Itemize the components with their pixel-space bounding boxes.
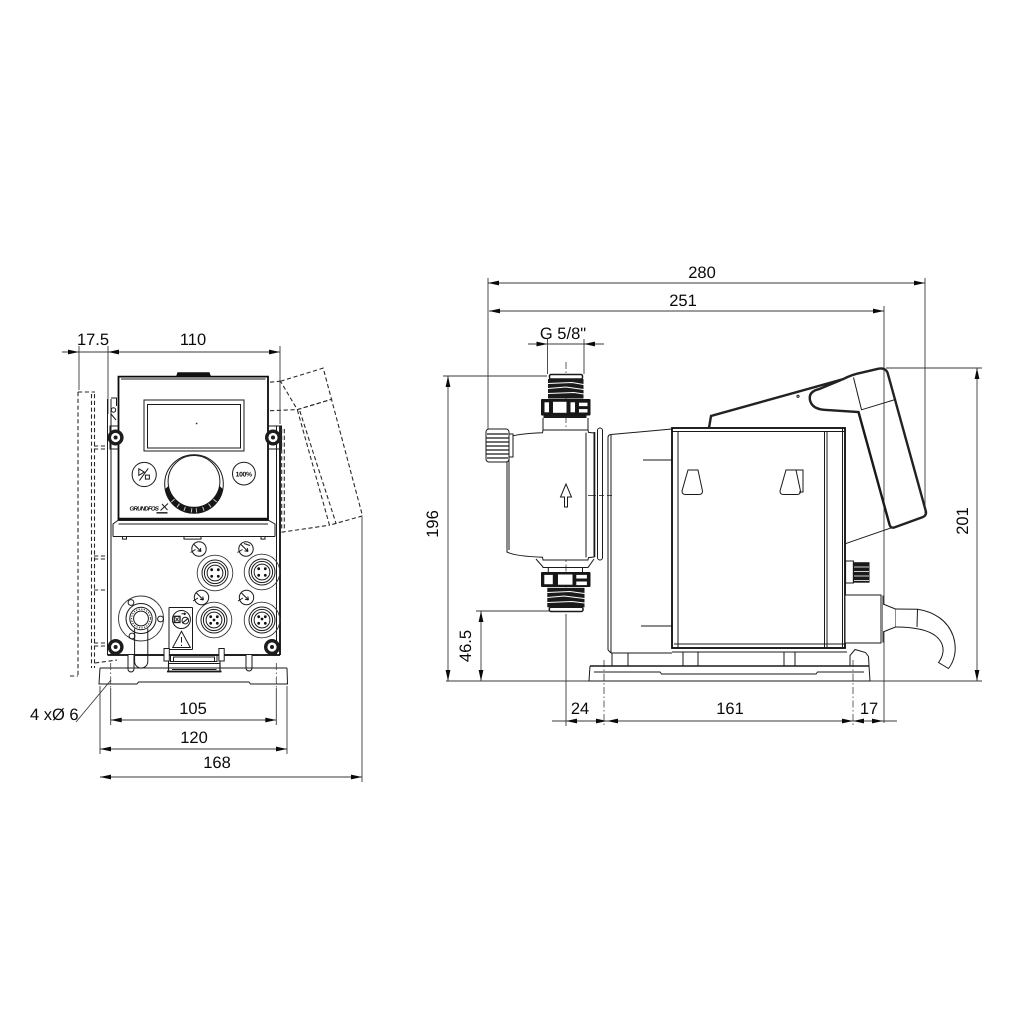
svg-text:168: 168: [203, 754, 231, 772]
svg-text:280: 280: [688, 264, 716, 282]
svg-text:201: 201: [954, 507, 972, 535]
svg-text:251: 251: [669, 292, 697, 310]
svg-text:17: 17: [860, 700, 878, 718]
svg-text:17.5: 17.5: [77, 331, 109, 349]
svg-text:GRUNDFOS: GRUNDFOS: [130, 506, 159, 513]
svg-text:100%: 100%: [236, 471, 252, 478]
svg-text:196: 196: [424, 510, 442, 538]
svg-text:120: 120: [180, 729, 208, 747]
svg-text:110: 110: [180, 331, 206, 349]
svg-text:161: 161: [716, 700, 744, 718]
svg-text:4 xØ 6: 4 xØ 6: [30, 706, 79, 724]
svg-text:G 5/8": G 5/8": [540, 325, 586, 343]
svg-text:46.5: 46.5: [457, 630, 475, 662]
svg-text:24: 24: [571, 700, 589, 718]
svg-text:105: 105: [179, 700, 207, 718]
